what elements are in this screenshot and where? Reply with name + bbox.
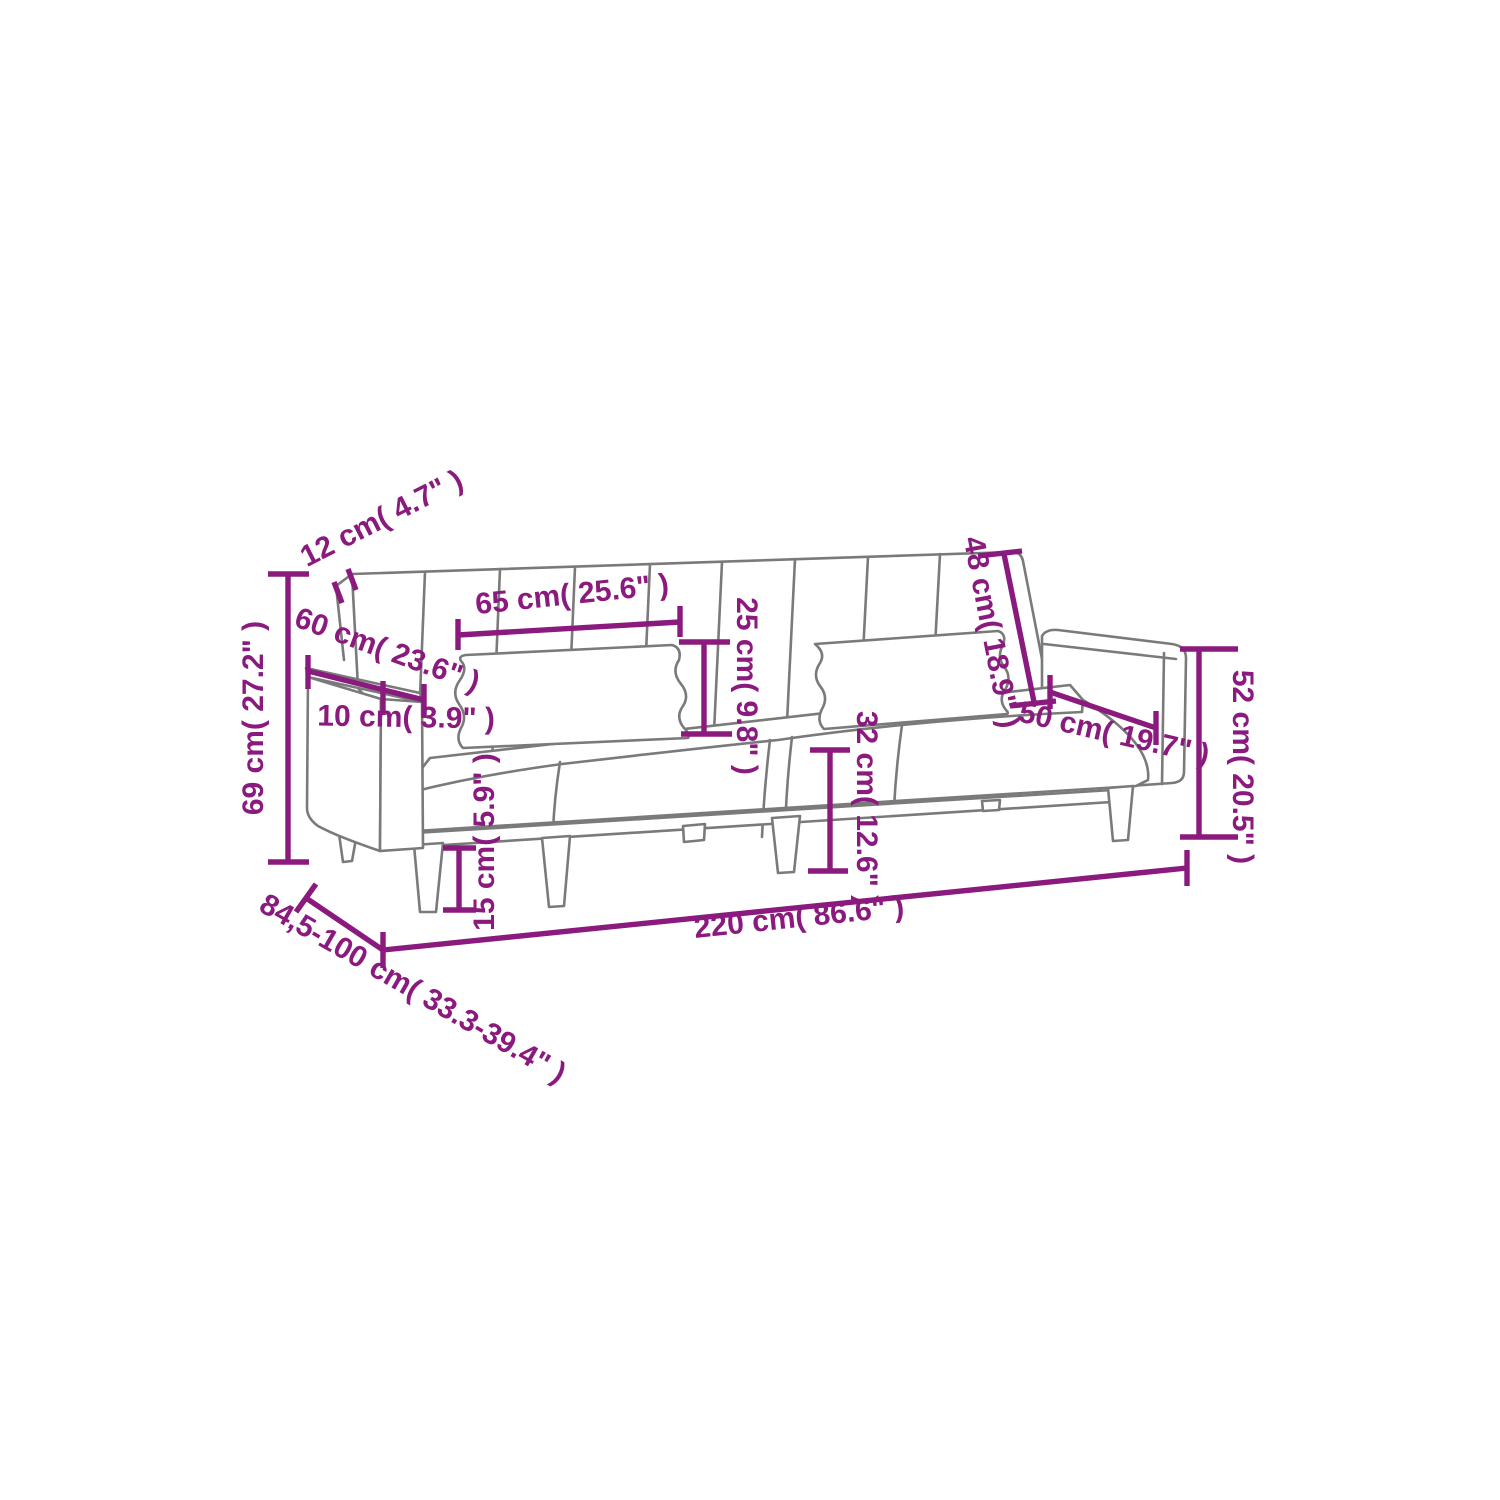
- dim-label-total-depth: 84,5-100 cm( 33.3-39.4" ): [254, 888, 572, 1090]
- dim-tick: [334, 582, 342, 603]
- dim-label-pillow-height: 25 cm( 9.8" ): [730, 597, 763, 775]
- dim-tick: [348, 569, 356, 590]
- dim-label-backrest-thickness: 12 cm( 4.7" ): [295, 464, 468, 574]
- leg-stub-right: [982, 800, 1000, 811]
- leg-mid-right: [772, 816, 800, 873]
- sofa-dimension-diagram: 12 cm( 4.7" ) 65 cm( 25.6" ) 25 cm( 9.8"…: [0, 0, 1500, 1500]
- leg-mid-left: [542, 836, 570, 907]
- diagram-canvas: 12 cm( 4.7" ) 65 cm( 25.6" ) 25 cm( 9.8"…: [0, 0, 1500, 1500]
- dim-label-armrest-width: 10 cm( 3.9" ): [317, 699, 495, 735]
- dim-label-total-width: 220 cm( 86.6" ): [692, 890, 905, 945]
- dim-label-arm-side-height: 52 cm( 20.5" ): [1226, 670, 1259, 864]
- leg-front-left: [414, 843, 443, 912]
- leg-front-right: [1108, 786, 1133, 841]
- dim-label-leg-height: 15 cm( 5.9" ): [468, 753, 501, 931]
- leg-stub-center: [683, 824, 705, 842]
- dim-label-seat-height: 32 cm( 12.6" ): [850, 711, 883, 905]
- dim-label-total-height: 69 cm( 27.2" ): [237, 621, 270, 815]
